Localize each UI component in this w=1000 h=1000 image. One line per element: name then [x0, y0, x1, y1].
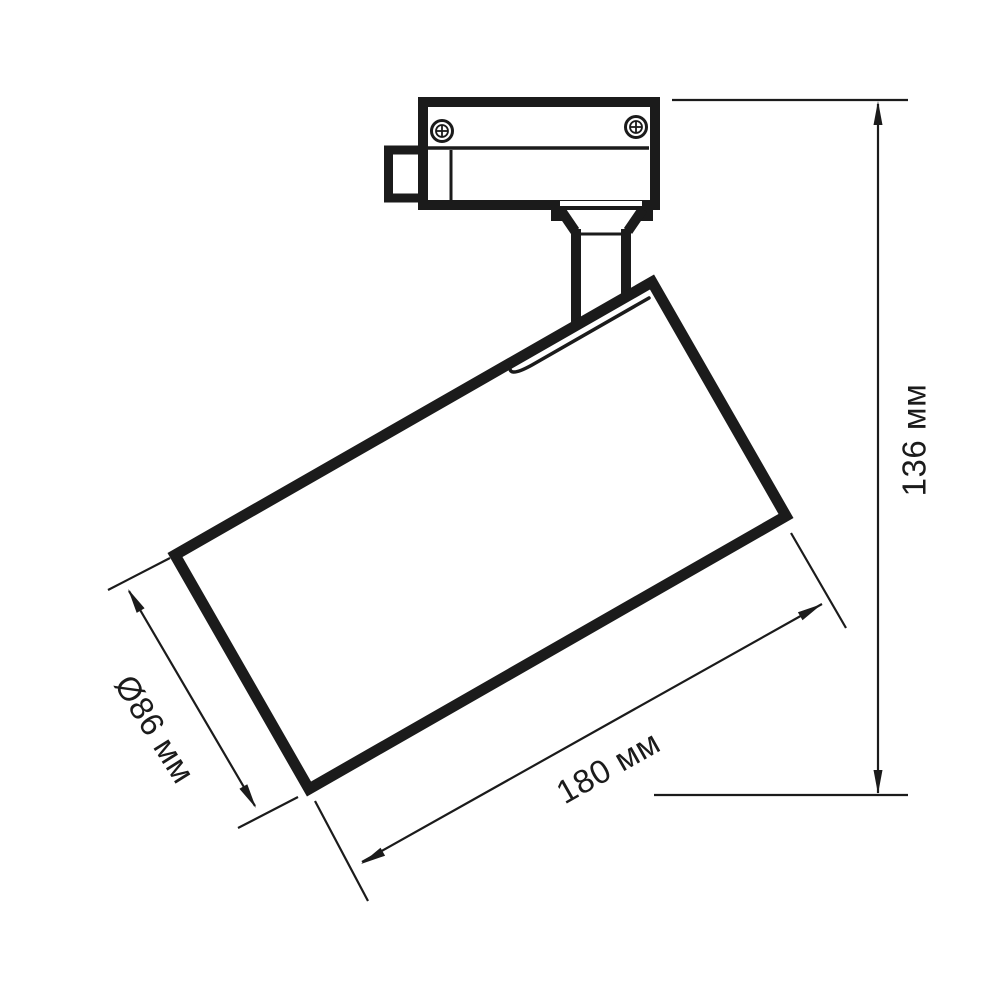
joint-flare-right: [628, 209, 643, 231]
arrowhead-back-icon: [798, 604, 822, 620]
dimension-drawing: 136 мм 180 мм Ø86 мм: [0, 0, 1000, 1000]
lamp-body: [175, 282, 786, 789]
dimension-height-label: 136 мм: [896, 384, 933, 497]
dimension-length-label: 180 мм: [550, 723, 666, 811]
fixture-drawing-svg: 136 мм 180 мм Ø86 мм: [0, 0, 1000, 1000]
joint-top-plate: [562, 206, 641, 210]
joint-flare-left: [560, 209, 575, 231]
adapter-tab: [389, 150, 423, 198]
lamp-body-outline: [175, 282, 786, 789]
arrowhead-down-icon: [874, 770, 883, 794]
arrowhead-front-icon: [361, 848, 385, 864]
arrowhead-upper-icon: [128, 589, 145, 613]
adapter-housing: [423, 102, 655, 205]
track-adapter: [389, 102, 656, 205]
diameter-extension-bottom: [238, 797, 298, 828]
diameter-extension-top: [108, 558, 170, 590]
length-extension-front: [315, 801, 368, 901]
dimension-diameter-label: Ø86 мм: [107, 668, 202, 789]
arrowhead-lower-icon: [239, 784, 256, 808]
arrowhead-up-icon: [874, 101, 883, 125]
